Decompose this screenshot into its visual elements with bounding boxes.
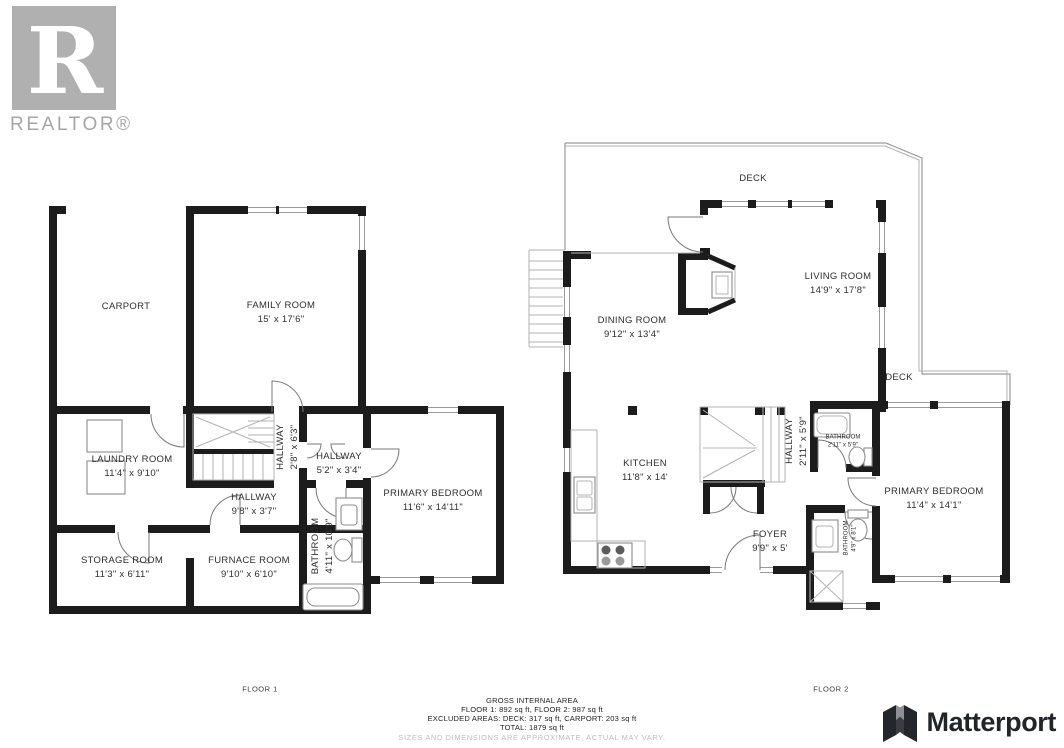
matterport-logo: Matterport bbox=[881, 702, 1057, 742]
room-label-living-room: LIVING ROOM 14'9" x 17'8" bbox=[805, 270, 872, 298]
room-label-kitchen: KITCHEN 11'8" x 14' bbox=[622, 457, 668, 485]
floor2-deck-outline bbox=[529, 143, 1010, 405]
room-label-furnace-room: FURNACE ROOM 9'10" x 6'10" bbox=[208, 554, 290, 582]
room-label-hallway-f2: HALLWAY 2'11" x 5'9" bbox=[783, 416, 811, 466]
floor2-tag: FLOOR 2 bbox=[813, 685, 849, 694]
room-label-storage-room: STORAGE ROOM 11'3" x 6'11" bbox=[81, 554, 163, 582]
floorplan-page: R REALTOR® bbox=[0, 0, 1064, 748]
room-label-deck-right: DECK bbox=[885, 371, 913, 385]
room-label-family-room: FAMILY ROOM 15' x 17'6" bbox=[247, 299, 315, 327]
room-label-bathroom-f1: BATHROOM 4'11" x 10'9" bbox=[309, 518, 337, 575]
svg-text:R: R bbox=[27, 7, 104, 110]
room-label-deck-top: DECK bbox=[739, 172, 767, 186]
room-label-laundry-room: LAUNDRY ROOM 11'4" x 9'10" bbox=[92, 453, 173, 481]
floor1-tag: FLOOR 1 bbox=[242, 685, 278, 694]
matterport-icon bbox=[881, 702, 919, 742]
realtor-logo-icon: R bbox=[12, 6, 116, 110]
room-label-bathroom-upper-f2: BATHROOM 2'11" x 5'9" bbox=[825, 435, 860, 450]
realtor-logo-word: REALTOR® bbox=[10, 114, 133, 136]
room-label-hallway-c: HALLWAY 9'8" x 3'7" bbox=[231, 491, 277, 519]
floor2-stairs bbox=[700, 407, 785, 513]
room-label-primary-bedroom-f1: PRIMARY BEDROOM 11'6" x 14'11" bbox=[383, 487, 482, 515]
matterport-word: Matterport bbox=[927, 707, 1057, 738]
room-label-bathroom-lower-f2: BATHROOM 4'9" x 8'1" bbox=[844, 520, 859, 555]
room-label-carport: CARPORT bbox=[102, 300, 150, 314]
room-label-hallway-a: HALLWAY 2'8" x 6'3" bbox=[274, 424, 302, 470]
room-label-dining-room: DINING ROOM 9'12" x 13'4" bbox=[598, 314, 667, 342]
room-label-hallway-b: HALLWAY 5'2" x 3'4" bbox=[316, 450, 362, 478]
room-label-foyer: FOYER 9'9" x 5' bbox=[752, 528, 788, 556]
floor1-stairs bbox=[193, 414, 274, 480]
room-label-primary-bedroom-f2: PRIMARY BEDROOM 11'4" x 14'1" bbox=[884, 485, 983, 513]
floor2-interior-lines bbox=[571, 253, 735, 312]
